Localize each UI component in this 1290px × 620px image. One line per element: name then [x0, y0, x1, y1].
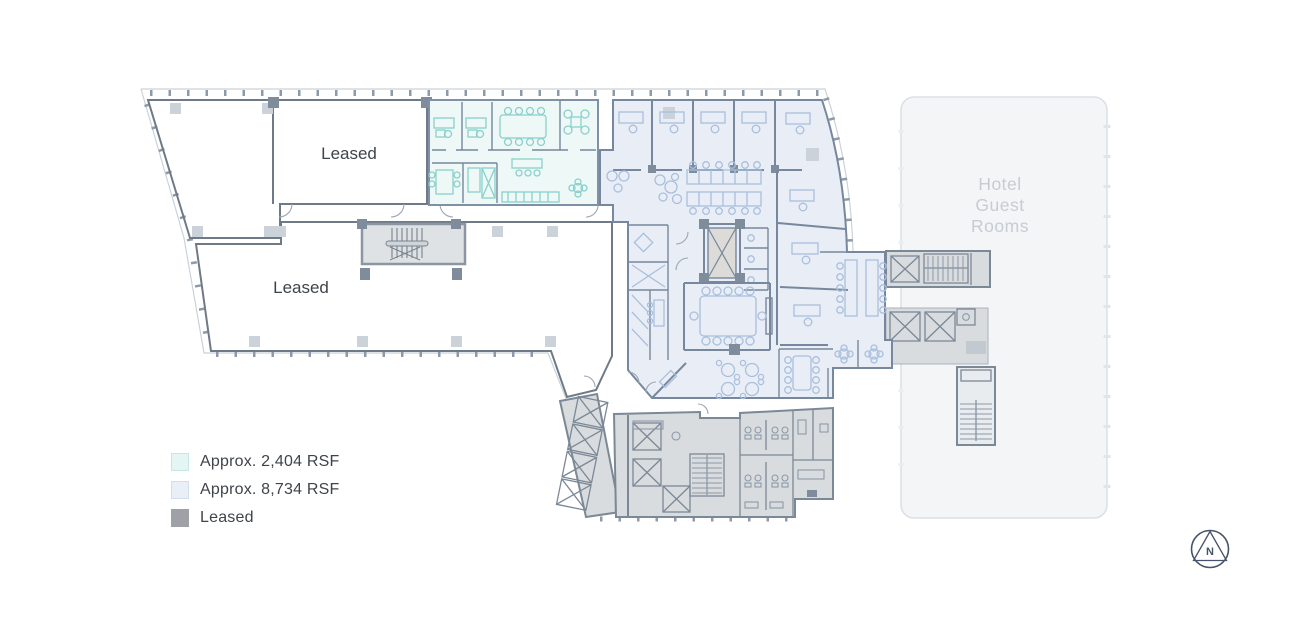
- legend-item-leased: Leased: [171, 508, 339, 527]
- legend: Approx. 2,404 RSF Approx. 8,734 RSF Leas…: [171, 452, 339, 536]
- hotel-label-line2: Guest: [975, 195, 1024, 215]
- stair-icon: [386, 228, 428, 260]
- legend-swatch-teal: [171, 453, 189, 471]
- leased-lower-label: Leased: [273, 278, 329, 297]
- legend-label: Approx. 2,404 RSF: [200, 453, 339, 471]
- legend-swatch-gray: [171, 509, 189, 527]
- compass-label: N: [1206, 546, 1214, 558]
- region-available-8734: [600, 100, 892, 399]
- hotel-label-line3: Rooms: [971, 216, 1029, 236]
- leased-upper-label: Leased: [321, 144, 377, 163]
- hotel-stairwell: [957, 367, 995, 445]
- legend-label: Approx. 8,734 RSF: [200, 481, 339, 499]
- region-leased-lower: Leased: [196, 204, 612, 397]
- hotel-core-elevator-stair-block: [886, 251, 990, 287]
- hotel-core-elevator-lobby: [886, 308, 988, 364]
- legend-label: Leased: [200, 509, 254, 527]
- legend-swatch-blue: [171, 481, 189, 499]
- compass-north-indicator: N: [1192, 531, 1229, 568]
- hotel-label-line1: Hotel: [978, 174, 1021, 194]
- region-available-2404: [429, 100, 598, 205]
- legend-item-available-2404: Approx. 2,404 RSF: [171, 452, 339, 471]
- region-leased-upper: Leased: [148, 97, 453, 238]
- bottom-core: [556, 394, 833, 517]
- legend-item-available-8734: Approx. 8,734 RSF: [171, 480, 339, 499]
- core-stair-block: [357, 219, 465, 280]
- floor-plan-page: Hotel Guest Rooms: [0, 0, 1290, 620]
